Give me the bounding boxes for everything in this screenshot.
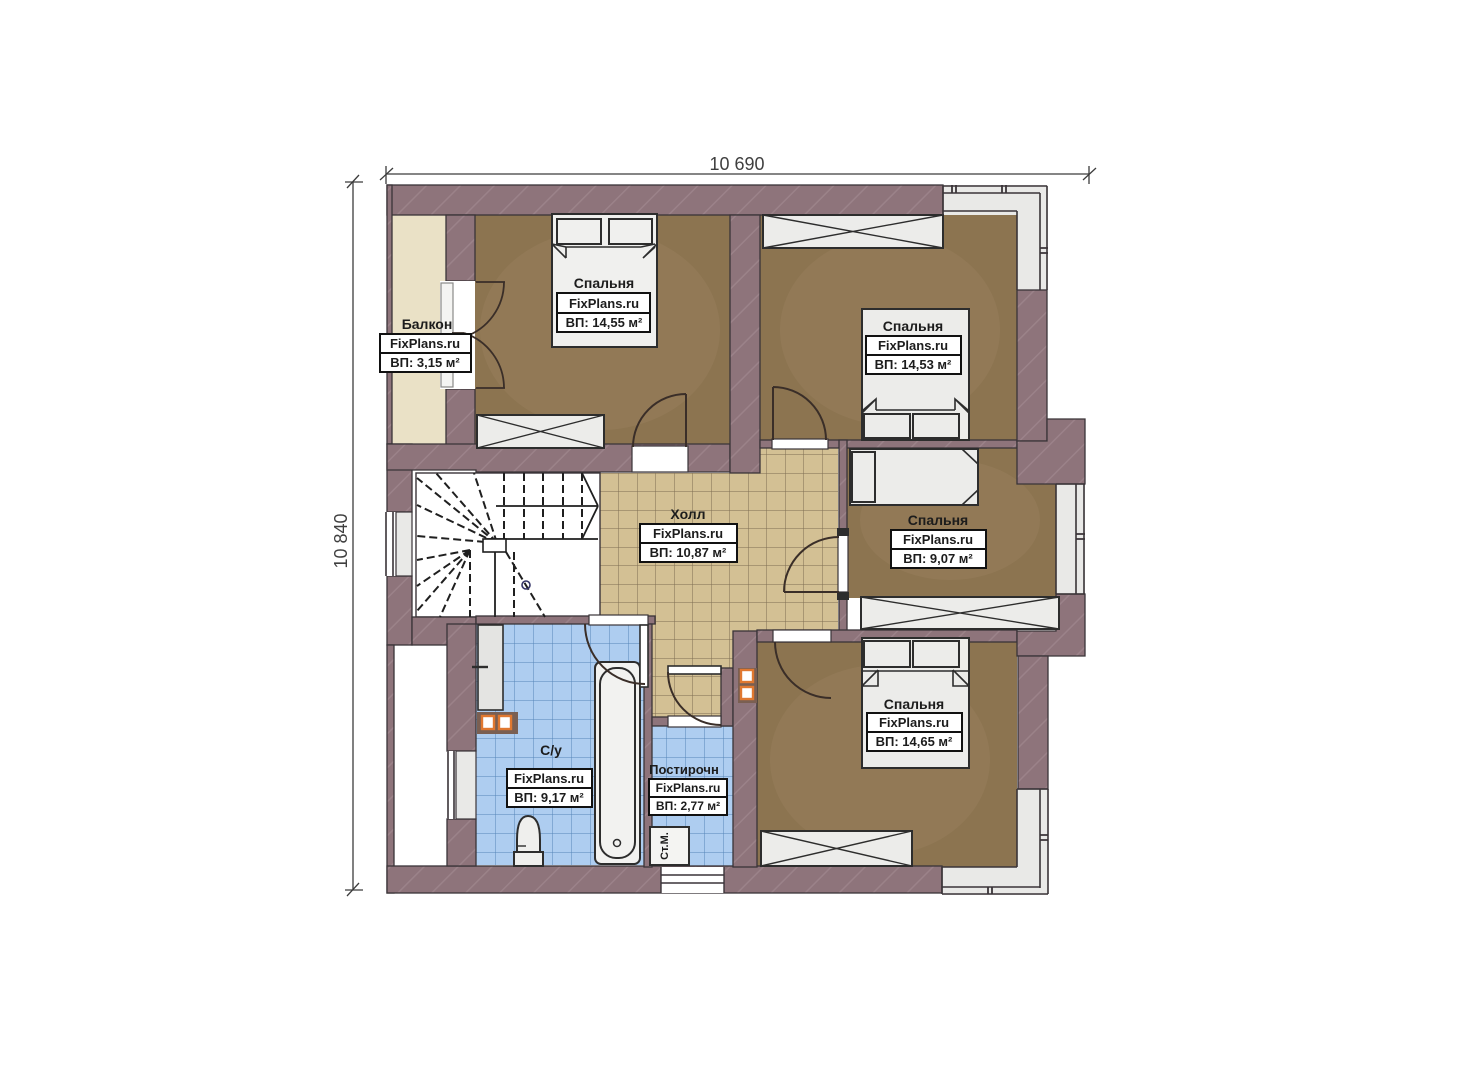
svg-text:FixPlans.ru: FixPlans.ru <box>878 338 948 353</box>
svg-text:10 690: 10 690 <box>709 154 764 174</box>
svg-text:FixPlans.ru: FixPlans.ru <box>653 526 723 541</box>
svg-text:ВП: 14,65 м²: ВП: 14,65 м² <box>876 734 953 749</box>
svg-text:Постирочн: Постирочн <box>649 762 719 777</box>
svg-text:ВП: 9,07 м²: ВП: 9,07 м² <box>903 551 973 566</box>
svg-text:FixPlans.ru: FixPlans.ru <box>514 771 584 786</box>
svg-text:ВП: 14,53 м²: ВП: 14,53 м² <box>875 357 952 372</box>
svg-text:Спальня: Спальня <box>884 696 944 712</box>
svg-text:ВП: 9,17 м²: ВП: 9,17 м² <box>514 790 584 805</box>
svg-text:FixPlans.ru: FixPlans.ru <box>903 532 973 547</box>
svg-text:Спальня: Спальня <box>908 512 968 528</box>
svg-text:Балкон: Балкон <box>402 316 453 332</box>
svg-text:FixPlans.ru: FixPlans.ru <box>569 296 639 311</box>
svg-text:ВП: 2,77 м²: ВП: 2,77 м² <box>656 799 720 813</box>
svg-text:Спальня: Спальня <box>883 318 943 334</box>
svg-text:Спальня: Спальня <box>574 275 634 291</box>
svg-text:10 840: 10 840 <box>331 513 351 568</box>
svg-text:С/у: С/у <box>540 742 562 758</box>
svg-text:ВП: 10,87 м²: ВП: 10,87 м² <box>650 545 727 560</box>
svg-text:FixPlans.ru: FixPlans.ru <box>390 336 460 351</box>
svg-text:Ст.М.: Ст.М. <box>659 832 671 860</box>
svg-text:ВП: 3,15 м²: ВП: 3,15 м² <box>390 355 460 370</box>
svg-text:Холл: Холл <box>670 506 705 522</box>
svg-text:FixPlans.ru: FixPlans.ru <box>879 715 949 730</box>
svg-text:FixPlans.ru: FixPlans.ru <box>656 781 721 795</box>
svg-text:ВП: 14,55 м²: ВП: 14,55 м² <box>566 315 643 330</box>
